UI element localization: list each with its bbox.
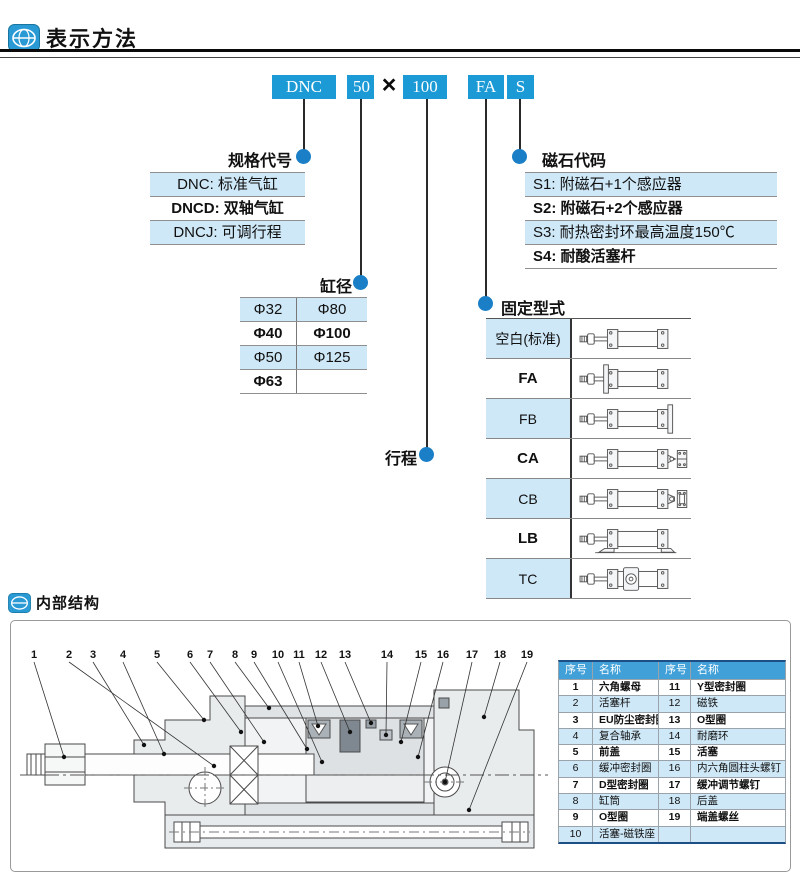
- part-number-cell: 6: [559, 761, 593, 777]
- part-number-cell: 16: [659, 761, 691, 777]
- part-name-cell: Y型密封圈: [691, 680, 785, 696]
- callout-dot: [416, 755, 420, 759]
- part-number-cell: 18: [659, 794, 691, 810]
- connector-line-magnet: [519, 99, 521, 151]
- bore-row: Φ50 Φ125: [240, 346, 367, 370]
- mounting-row-fb: FB: [486, 399, 691, 439]
- structure-title: 内部结构: [36, 592, 100, 613]
- part-name-cell: EU防尘密封圈: [593, 713, 659, 729]
- part-number-cell: 3: [559, 713, 593, 729]
- callout-number: 6: [187, 649, 193, 661]
- mounting-type-label: FB: [486, 399, 572, 438]
- model-code-bore: 50: [347, 75, 376, 99]
- part-number-cell: 9: [559, 810, 593, 826]
- parts-header-cell: 名称: [691, 662, 785, 680]
- part-name-cell: 后盖: [691, 794, 785, 810]
- mounting-row-cb: CB: [486, 479, 691, 519]
- part-name-cell: O型圈: [691, 713, 785, 729]
- mounting-type-label: TC: [486, 559, 572, 598]
- connector-line-mounting: [485, 99, 487, 298]
- part-name-cell: O型圈: [593, 810, 659, 826]
- bullet-series: [296, 149, 311, 164]
- callout-number: 18: [494, 649, 506, 661]
- part-name-cell: 缸筒: [593, 794, 659, 810]
- model-code-series: DNC: [272, 75, 336, 99]
- callout-number: 4: [120, 649, 127, 661]
- mounting-table: 空白(标准) FA FB CA CB: [486, 318, 691, 599]
- connector-line-bore: [360, 99, 362, 277]
- mounting-type-label: CA: [486, 439, 572, 478]
- part-number-cell: 5: [559, 745, 593, 761]
- callout-number: 13: [339, 649, 351, 661]
- bore-row: Φ63: [240, 370, 367, 394]
- mounting-row-lb: LB: [486, 519, 691, 559]
- callout-dot: [262, 740, 266, 744]
- callout-dot: [316, 724, 320, 728]
- bore-row: Φ40 Φ100: [240, 322, 367, 346]
- callout-number: 3: [90, 649, 96, 661]
- callout-leader-line: [34, 662, 64, 757]
- callout-dot: [239, 730, 243, 734]
- callout-number: 12: [315, 649, 327, 661]
- part-number-cell: 2: [559, 696, 593, 712]
- part-number-cell: 8: [559, 794, 593, 810]
- part-name-cell: 复合轴承: [593, 729, 659, 745]
- parts-header-cell: 名称: [593, 662, 659, 680]
- part-name-cell: 缓冲调节螺钉: [691, 778, 785, 794]
- part-name-cell: 耐磨环: [691, 729, 785, 745]
- callout-dot: [267, 706, 271, 710]
- callout-dot: [162, 752, 166, 756]
- callout-number: 5: [154, 649, 160, 661]
- part-number-cell: 4: [559, 729, 593, 745]
- part-number-cell: 7: [559, 778, 593, 794]
- model-code-stroke: 100: [403, 75, 447, 99]
- callout-number: 7: [207, 649, 213, 661]
- part-name-cell: 端盖螺丝: [691, 810, 785, 826]
- model-code-magnet: S: [507, 75, 534, 99]
- part-name-cell: 内六角圆柱头螺钉: [691, 761, 785, 777]
- bore-cell: Φ125: [296, 346, 367, 369]
- brand-icon-small: [8, 593, 31, 618]
- bore-cell: Φ32: [240, 298, 296, 321]
- callout-dot: [369, 721, 373, 725]
- catalog-page: { "colors":{"primary_blue":"#1b9ad6","bu…: [0, 0, 800, 876]
- callout-dot: [443, 780, 447, 784]
- callout-dot: [320, 760, 324, 764]
- mounting-type-label: FA: [486, 359, 572, 398]
- parts-header-cell: 序号: [559, 662, 593, 680]
- spec-code-table: DNC: 标准气缸 DNCD: 双轴气缸 DNCJ: 可调行程: [150, 172, 305, 245]
- magnet-row-s2: S2: 附磁石+2个感应器: [525, 197, 777, 221]
- spec-code-label: 规格代号: [196, 147, 292, 171]
- mount-diagram-standard-icon: [572, 319, 691, 358]
- mounting-type-label: 空白(标准): [486, 319, 572, 358]
- callout-number: 19: [521, 649, 533, 661]
- bore-cell: [296, 370, 367, 393]
- magnet-code-label: 磁石代码: [542, 147, 606, 171]
- part-name-cell: 缓冲密封圈: [593, 761, 659, 777]
- mounting-label: 固定型式: [501, 295, 565, 319]
- callout-number: 15: [415, 649, 427, 661]
- callout-number: 8: [232, 649, 238, 661]
- times-separator: ×: [374, 71, 404, 99]
- mounting-type-label: LB: [486, 519, 572, 558]
- callout-dot: [305, 747, 309, 751]
- bullet-stroke: [419, 447, 434, 462]
- callout-number: 14: [381, 649, 394, 661]
- callout-dot: [62, 755, 66, 759]
- part-number-cell: 19: [659, 810, 691, 826]
- mount-diagram-fb-icon: [572, 399, 691, 438]
- bullet-bore: [353, 275, 368, 290]
- part-name-cell: 活塞-磁铁座: [593, 827, 659, 842]
- part-number-cell: 15: [659, 745, 691, 761]
- part-number-cell: 17: [659, 778, 691, 794]
- part-number-cell: [659, 827, 691, 842]
- callout-number: 16: [437, 649, 449, 661]
- part-number-cell: 10: [559, 827, 593, 842]
- callout-dot: [482, 715, 486, 719]
- part-number-cell: 11: [659, 680, 691, 696]
- part-name-cell: D型密封圈: [593, 778, 659, 794]
- part-name-cell: 六角螺母: [593, 680, 659, 696]
- mounting-type-label: CB: [486, 479, 572, 518]
- callout-dot: [142, 743, 146, 747]
- callout-dot: [202, 718, 206, 722]
- mounting-row-ca: CA: [486, 439, 691, 479]
- parts-table: 序号名称序号名称1六角螺母11Y型密封圈2活塞杆12磁铁3EU防尘密封圈13O型…: [558, 660, 786, 844]
- callout-dot: [467, 808, 471, 812]
- spec-row-dncd: DNCD: 双轴气缸: [150, 197, 305, 221]
- part-number-cell: 14: [659, 729, 691, 745]
- callout-dot: [399, 740, 403, 744]
- magnet-code-table: S1: 附磁石+1个感应器 S2: 附磁石+2个感应器 S3: 耐热密封环最高温…: [525, 172, 777, 269]
- part-name-cell: 活塞杆: [593, 696, 659, 712]
- mount-diagram-fa-icon: [572, 359, 691, 398]
- connector-line-series: [303, 99, 305, 151]
- parts-header-cell: 序号: [659, 662, 691, 680]
- callout-number: 17: [466, 649, 478, 661]
- magnet-row-s4: S4: 耐酸活塞杆: [525, 245, 777, 269]
- mounting-row-blank: 空白(标准): [486, 319, 691, 359]
- callout-number: 10: [272, 649, 284, 661]
- header-rule: [0, 49, 800, 58]
- mount-diagram-lb-icon: [572, 519, 691, 558]
- callout-leader-line: [157, 662, 204, 720]
- part-name-cell: 磁铁: [691, 696, 785, 712]
- internal-structure-drawing: 12345678910111213141516171819: [14, 642, 554, 868]
- part-number-cell: 13: [659, 713, 691, 729]
- callout-number: 2: [66, 649, 72, 661]
- callout-dot: [348, 730, 352, 734]
- part-name-cell: [691, 827, 785, 842]
- bullet-magnet: [512, 149, 527, 164]
- magnet-row-s1: S1: 附磁石+1个感应器: [525, 173, 777, 197]
- mounting-row-fa: FA: [486, 359, 691, 399]
- mounting-row-tc: TC: [486, 559, 691, 599]
- bore-cell: Φ80: [296, 298, 367, 321]
- part-number-cell: 1: [559, 680, 593, 696]
- callout-dot: [212, 764, 216, 768]
- bore-cell: Φ63: [240, 370, 296, 393]
- magnet-row-s3: S3: 耐热密封环最高温度150℃: [525, 221, 777, 245]
- bore-cell: Φ40: [240, 322, 296, 345]
- callout-dot: [384, 733, 388, 737]
- bore-cell: Φ100: [296, 322, 367, 345]
- callout-number: 1: [31, 649, 37, 661]
- bore-cell: Φ50: [240, 346, 296, 369]
- bore-label: 缸径: [312, 273, 352, 297]
- spec-row-dncj: DNCJ: 可调行程: [150, 221, 305, 245]
- part-name-cell: 前盖: [593, 745, 659, 761]
- part-name-cell: 活塞: [691, 745, 785, 761]
- bullet-mounting: [478, 296, 493, 311]
- bore-row: Φ32 Φ80: [240, 298, 367, 322]
- callout-leader-line: [93, 662, 144, 745]
- bore-table: Φ32 Φ80 Φ40 Φ100 Φ50 Φ125 Φ63: [240, 297, 367, 394]
- mount-diagram-tc-icon: [572, 559, 691, 598]
- mount-diagram-ca-icon: [572, 439, 691, 478]
- mount-diagram-cb-icon: [572, 479, 691, 518]
- part-number-cell: 12: [659, 696, 691, 712]
- callout-number: 11: [293, 649, 305, 661]
- spec-row-dnc: DNC: 标准气缸: [150, 173, 305, 197]
- connector-line-stroke: [426, 99, 428, 449]
- model-code-mounting: FA: [468, 75, 504, 99]
- stroke-label: 行程: [381, 445, 417, 469]
- callout-number: 9: [251, 649, 257, 661]
